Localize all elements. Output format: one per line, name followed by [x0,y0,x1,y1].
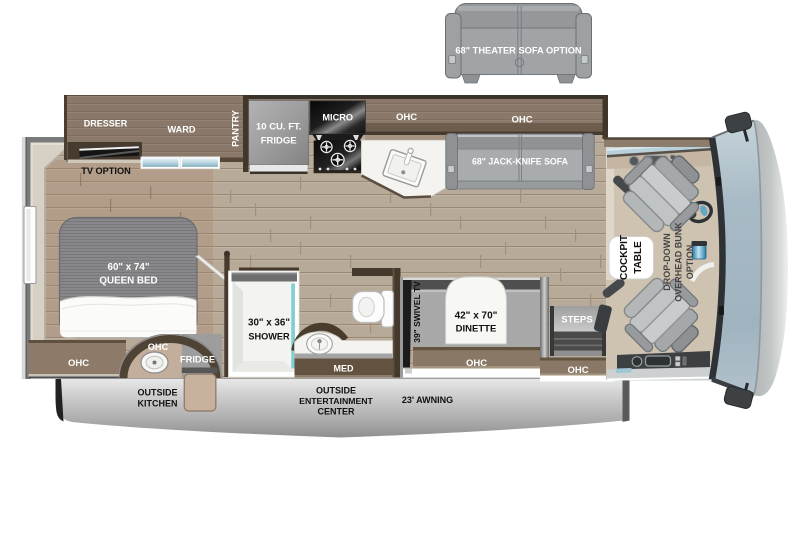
svg-text:OHC: OHC [567,365,588,376]
svg-text:OHC: OHC [396,112,417,123]
svg-text:42" x 70": 42" x 70" [455,311,498,322]
svg-text:ENTERTAINMENT: ENTERTAINMENT [299,396,373,406]
svg-text:QUEEN BED: QUEEN BED [99,276,157,287]
svg-text:OHC: OHC [511,115,532,126]
svg-text:OVERHEAD BUNK: OVERHEAD BUNK [674,222,684,302]
svg-text:OHC: OHC [68,358,89,369]
svg-text:FRIDGE: FRIDGE [261,136,297,147]
svg-text:DRESSER: DRESSER [84,119,128,129]
svg-text:STEPS: STEPS [561,315,593,326]
svg-text:MED: MED [334,364,355,374]
svg-text:TV OPTION: TV OPTION [81,166,131,176]
svg-text:KITCHEN: KITCHEN [138,399,178,409]
svg-text:PANTRY: PANTRY [231,110,241,147]
svg-text:23' AWNING: 23' AWNING [402,395,453,405]
svg-text:DROP-DOWN: DROP-DOWN [662,233,672,291]
svg-text:CENTER: CENTER [317,407,355,417]
svg-text:30" x 36": 30" x 36" [248,318,290,329]
svg-text:60" x 74": 60" x 74" [108,262,150,273]
svg-text:SHOWER: SHOWER [248,332,290,342]
svg-text:10 CU. FT.: 10 CU. FT. [256,122,301,133]
svg-text:OUTSIDE: OUTSIDE [316,386,356,396]
svg-text:WARD: WARD [167,125,195,135]
svg-text:68" THEATER SOFA OPTION: 68" THEATER SOFA OPTION [455,46,582,56]
svg-text:OUTSIDE: OUTSIDE [137,388,177,398]
svg-text:FRIDGE: FRIDGE [180,355,215,365]
svg-text:OHC: OHC [466,358,487,369]
svg-text:OHC: OHC [148,342,169,352]
svg-text:COCKPIT: COCKPIT [619,235,630,280]
svg-text:MICRO: MICRO [322,113,353,123]
svg-text:DINETTE: DINETTE [456,324,497,335]
svg-text:39" SWIVEL TV: 39" SWIVEL TV [412,281,422,343]
svg-text:OPTION: OPTION [685,245,695,280]
svg-text:TABLE: TABLE [633,241,644,274]
svg-text:68" JACK-KNIFE SOFA: 68" JACK-KNIFE SOFA [472,157,569,167]
